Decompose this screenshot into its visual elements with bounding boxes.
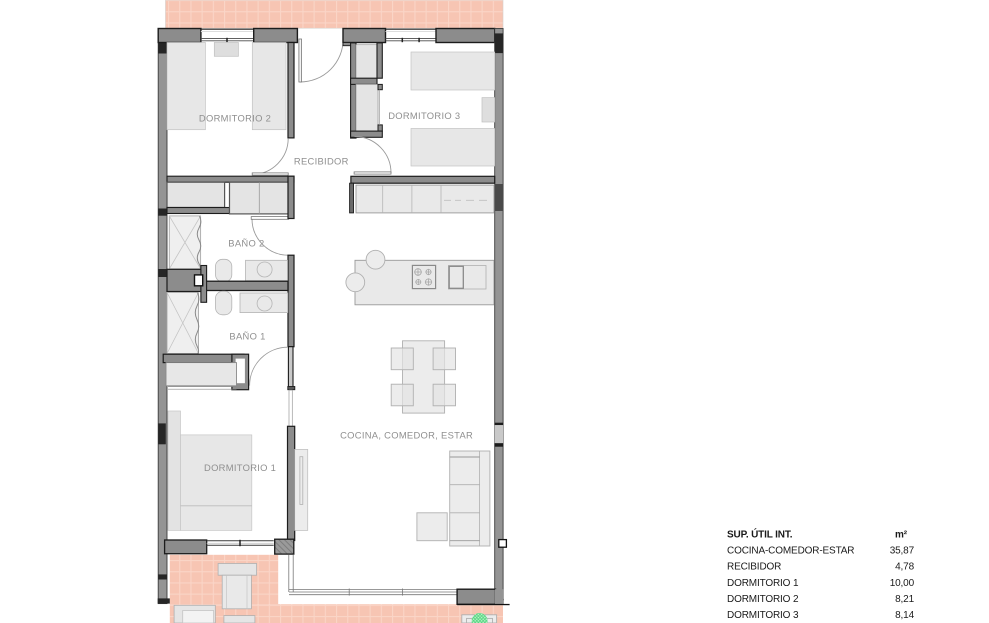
svg-text:SUP. ÚTIL INT.: SUP. ÚTIL INT. <box>727 528 793 541</box>
svg-text:BAÑO 1: BAÑO 1 <box>229 331 265 342</box>
svg-text:DORMITORIO 3: DORMITORIO 3 <box>388 110 460 121</box>
svg-text:DORMITORIO 2: DORMITORIO 2 <box>199 112 271 123</box>
svg-text:DORMITORIO 2: DORMITORIO 2 <box>727 594 799 605</box>
svg-text:DORMITORIO 3: DORMITORIO 3 <box>727 610 799 621</box>
svg-text:RECIBIDOR: RECIBIDOR <box>727 562 781 573</box>
svg-text:COCINA, COMEDOR, ESTAR: COCINA, COMEDOR, ESTAR <box>340 429 473 440</box>
svg-text:8,21: 8,21 <box>895 594 914 605</box>
svg-text:RECIBIDOR: RECIBIDOR <box>294 156 349 167</box>
svg-text:8,14: 8,14 <box>895 610 914 621</box>
svg-text:DORMITORIO 1: DORMITORIO 1 <box>727 578 799 589</box>
svg-text:COCINA-COMEDOR-ESTAR: COCINA-COMEDOR-ESTAR <box>727 546 854 557</box>
svg-text:4,78: 4,78 <box>895 562 914 573</box>
svg-text:BAÑO 2: BAÑO 2 <box>228 237 264 248</box>
svg-text:DORMITORIO 1: DORMITORIO 1 <box>204 462 276 473</box>
svg-text:m²: m² <box>895 530 908 541</box>
svg-text:10,00: 10,00 <box>890 578 915 589</box>
svg-text:35,87: 35,87 <box>890 546 915 557</box>
